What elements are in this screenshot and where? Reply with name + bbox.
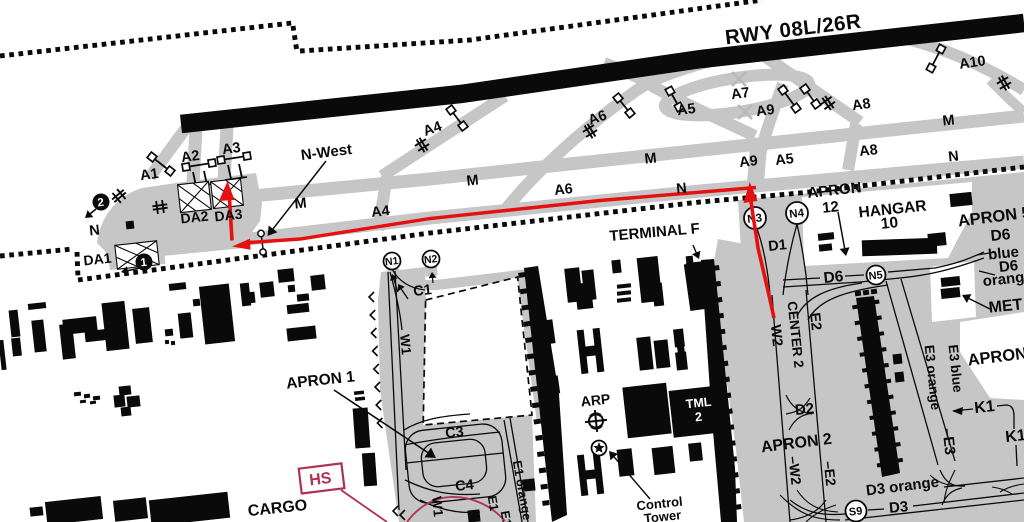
svg-text:DA1: DA1 (83, 250, 113, 269)
svg-text:DA3: DA3 (214, 206, 244, 225)
svg-text:A9: A9 (739, 153, 759, 171)
svg-text:A8: A8 (851, 96, 872, 114)
svg-text:M: M (294, 195, 308, 212)
svg-text:E1: E1 (485, 495, 501, 513)
svg-text:A4: A4 (371, 203, 391, 221)
svg-text:ARP: ARP (580, 391, 611, 410)
svg-text:A6: A6 (554, 181, 574, 199)
svg-text:N: N (948, 149, 960, 166)
svg-text:E2: E2 (806, 312, 824, 331)
svg-text:A7: A7 (730, 85, 751, 103)
svg-text:W2: W2 (767, 324, 785, 347)
svg-text:S9: S9 (848, 505, 863, 518)
svg-text:HS: HS (308, 470, 332, 490)
svg-text:N4: N4 (789, 207, 805, 221)
svg-text:W1: W1 (397, 334, 414, 356)
svg-text:A5: A5 (775, 151, 795, 169)
svg-text:–E2: –E2 (821, 460, 840, 487)
svg-text:N2: N2 (423, 253, 438, 266)
svg-text:K1: K1 (1004, 427, 1024, 446)
svg-text:E1: E1 (498, 510, 514, 522)
svg-text:12: 12 (821, 198, 839, 217)
svg-text:W1: W1 (429, 496, 446, 518)
svg-text:M: M (942, 112, 956, 129)
svg-text:10: 10 (880, 214, 899, 233)
svg-text:M: M (466, 172, 480, 189)
svg-text:A2: A2 (180, 148, 201, 166)
svg-text:N: N (676, 181, 688, 198)
svg-text:C4: C4 (455, 477, 475, 495)
svg-text:A9: A9 (755, 102, 776, 120)
svg-text:N: N (89, 223, 101, 240)
svg-text:MET: MET (988, 296, 1024, 316)
svg-text:D3: D3 (888, 498, 909, 517)
svg-text:M: M (644, 150, 658, 167)
svg-text:DA2: DA2 (180, 208, 210, 227)
svg-text:N5: N5 (868, 269, 883, 282)
svg-text:N1: N1 (384, 255, 399, 268)
svg-text:A3: A3 (221, 140, 242, 158)
svg-text:A1: A1 (139, 166, 160, 184)
svg-text:D6: D6 (823, 268, 845, 287)
svg-text:A5: A5 (676, 101, 697, 119)
svg-text:C3: C3 (445, 424, 465, 442)
svg-text:K1: K1 (973, 398, 995, 417)
svg-text:D6: D6 (990, 226, 1012, 245)
svg-text:–W2: –W2 (786, 455, 805, 486)
svg-text:C1: C1 (413, 282, 433, 300)
svg-text:TML: TML (685, 395, 712, 412)
svg-text:2: 2 (97, 197, 105, 210)
svg-text:A8: A8 (859, 142, 879, 160)
svg-text:D2: D2 (794, 400, 815, 419)
svg-text:–E3: –E3 (939, 427, 959, 455)
svg-text:D1: D1 (768, 237, 788, 255)
